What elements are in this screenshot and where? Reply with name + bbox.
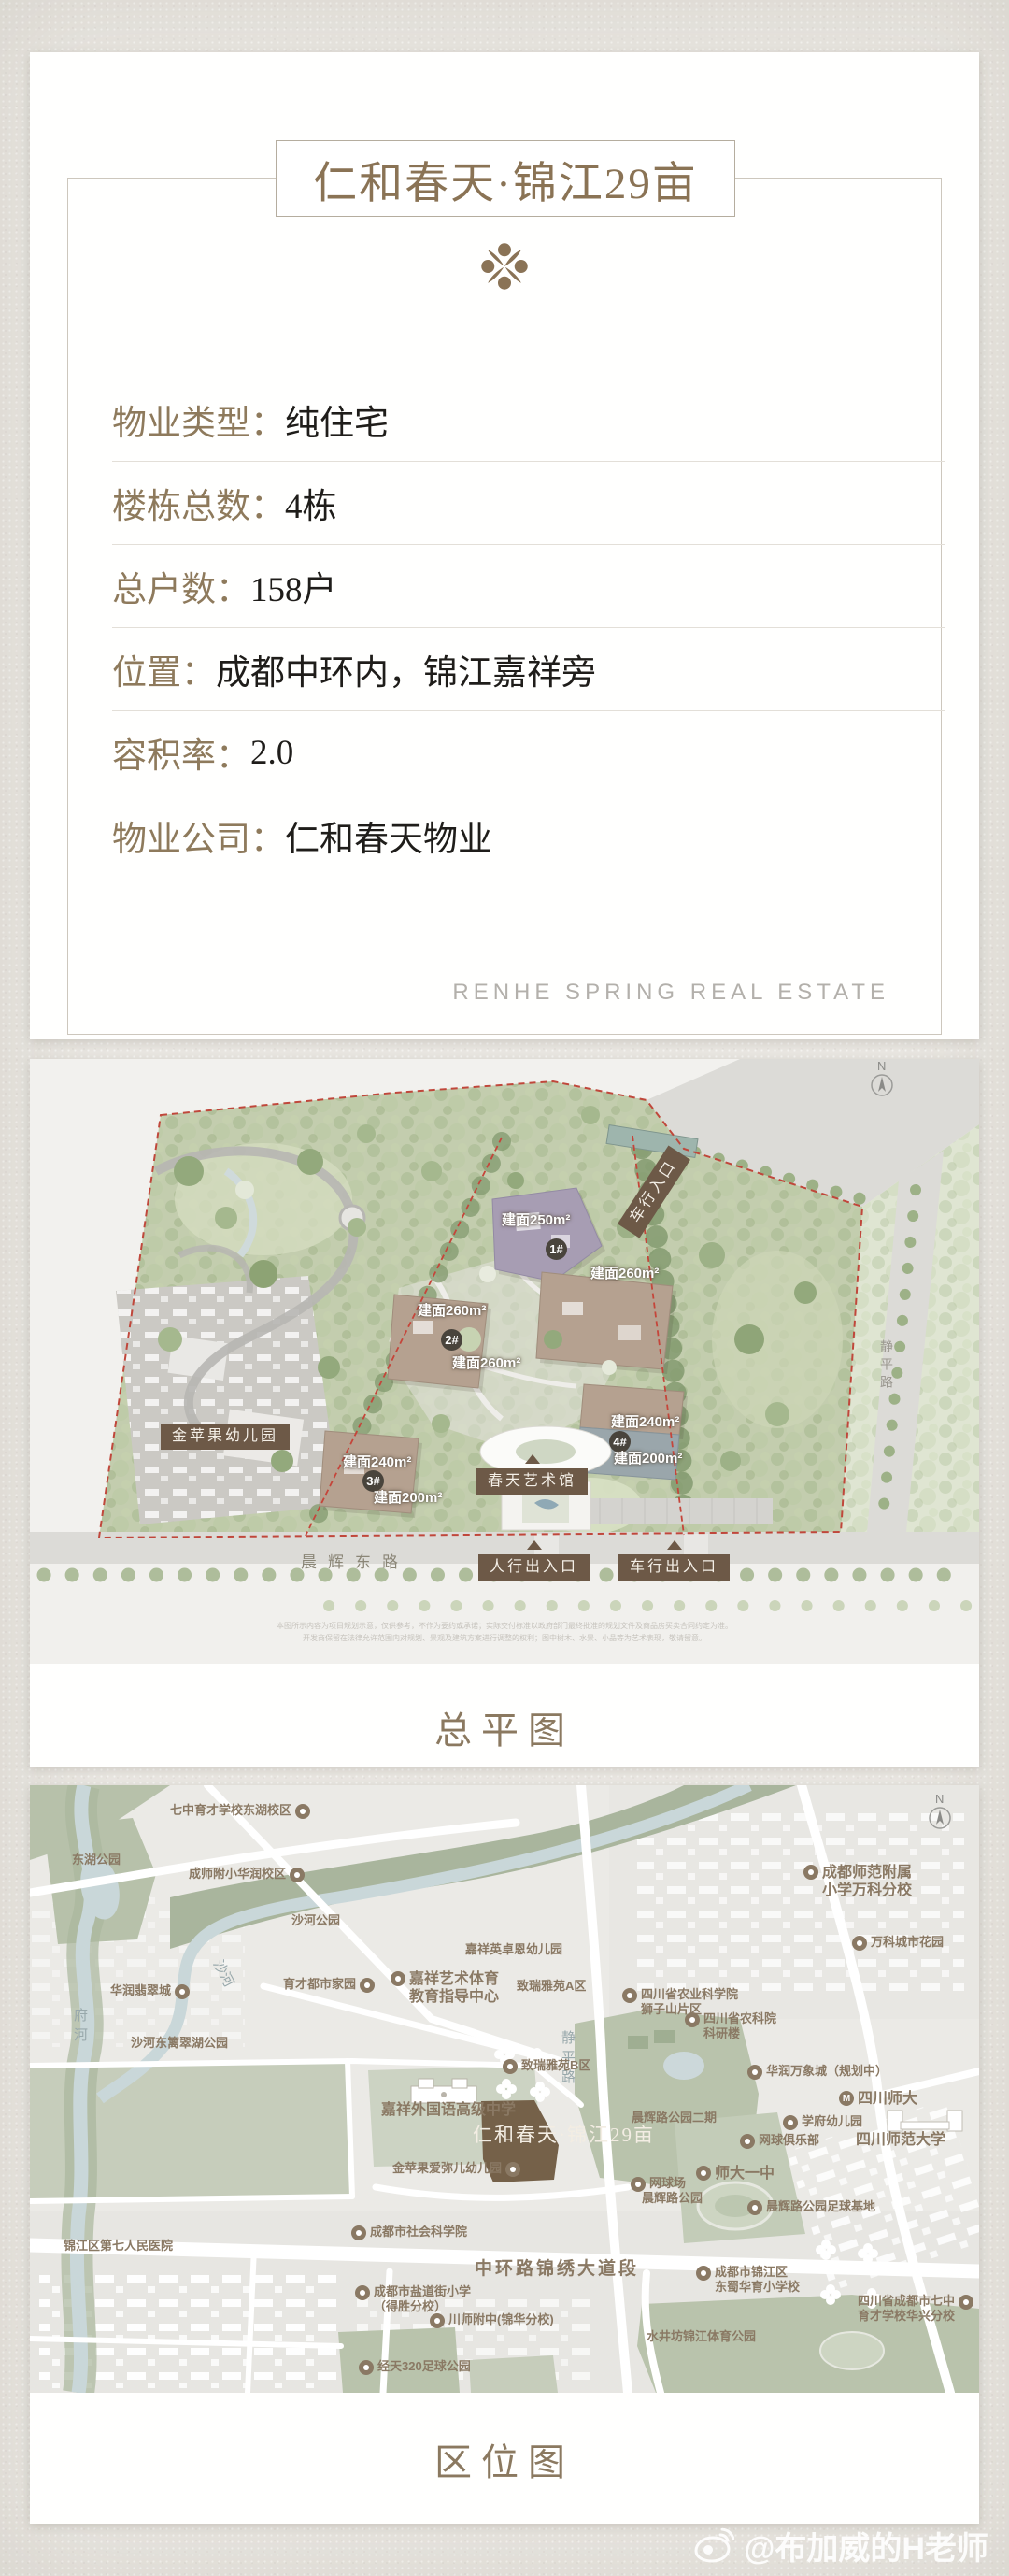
building-area-label: 建面200m² — [614, 1452, 682, 1467]
poi-school: 成都市锦江区东蜀华育小学校 — [696, 2265, 800, 2295]
property-row: 容积率：2.0 — [112, 711, 945, 794]
poi-icon — [747, 2200, 762, 2215]
poi-residence: 致瑞雅苑A区 — [517, 1979, 586, 1994]
poi-tennis-court: 网球场 — [631, 2176, 686, 2192]
building-3-badge: 3# — [362, 1470, 384, 1492]
info-card: 仁和春天·锦江29亩 物业类型：纯住宅楼栋总数：4栋总户数：158户位置：成都中… — [30, 52, 979, 1039]
poi-school: 成都师范附属小学万科分校 — [803, 1864, 912, 1899]
poi-school-jiaxiang: 嘉祥外国语高级中学 — [381, 2101, 516, 2119]
poi-school: 师大一中 — [696, 2165, 775, 2182]
poi-icon — [685, 2012, 700, 2027]
poi-icon — [631, 2177, 646, 2192]
project-title: 仁和春天·锦江29亩 — [313, 147, 698, 211]
property-row: 楼栋总数：4栋 — [112, 462, 945, 545]
poi-park: 东湖公园 — [72, 1853, 121, 1868]
building-area-label: 建面260m² — [418, 1304, 486, 1319]
road-label-jingping: 静平路 — [875, 1339, 894, 1397]
poi-icon — [852, 1936, 867, 1951]
poi-icon — [622, 1988, 637, 2003]
poi-icon — [295, 1804, 310, 1819]
poi-icon — [355, 2285, 370, 2300]
poi-icon — [175, 1984, 190, 1999]
poi-icon — [430, 2313, 445, 2328]
poi-school: 川师附中(锦华分校) — [430, 2312, 554, 2328]
poi-park: 晨辉路公园 — [642, 2191, 703, 2206]
brand-flower-icon — [478, 240, 531, 293]
brand-en-label: RENHE SPRING REAL ESTATE — [452, 980, 889, 1006]
road-label-zhonghuan: 中环路锦绣大道段 — [475, 2260, 639, 2278]
poi-institute: 四川省农科院科研楼 — [685, 2011, 776, 2041]
building-area-label: 建面260m² — [590, 1267, 659, 1281]
weibo-watermark: @布加威的H老师 — [693, 2523, 988, 2569]
property-row: 总户数：158户 — [112, 545, 945, 628]
site-entrance-vehicle-top: 车行入口 — [618, 1145, 690, 1238]
project-title-box: 仁和春天·锦江29亩 — [276, 140, 735, 217]
poi-sports-park: 水井坊锦江体育公园 — [647, 2329, 756, 2344]
vehicle-entrance-banner: 车行出入口 — [618, 1554, 730, 1581]
building-area-label: 建面200m² — [374, 1491, 442, 1506]
poi-icon — [290, 1868, 305, 1882]
poi-icon: M — [839, 2091, 854, 2106]
poi-icon — [783, 2115, 798, 2130]
poi-icon — [360, 1978, 375, 1993]
poi-school: 七中育才学校东湖校区 — [170, 1803, 310, 1819]
poi-academy: 成都市社会科学院 — [351, 2225, 467, 2240]
site-plan-card: N 车行入口建面250m²1#建面260m²建面260m²2#建面260m²建面… — [30, 1059, 979, 1767]
poi-metro-station: M四川师大 — [839, 2090, 917, 2108]
site-plan-labels: 车行入口建面250m²1#建面260m²建面260m²2#建面260m²建面24… — [30, 1059, 979, 1664]
building-1-badge: 1# — [546, 1238, 567, 1260]
poi-residence: 华润翡翠城 — [110, 1983, 190, 1999]
poster-page: 仁和春天·锦江29亩 物业类型：纯住宅楼栋总数：4栋总户数：158户位置：成都中… — [0, 0, 1009, 2576]
poi-education-center: 嘉祥艺术体育教育指导中心 — [391, 1970, 499, 2006]
poi-school: 四川省成都市七中育才学校华兴分校 — [858, 2294, 973, 2324]
building-2-badge: 2# — [441, 1329, 462, 1351]
poi-icon — [351, 2225, 366, 2240]
property-rows: 物业类型：纯住宅楼栋总数：4栋总户数：158户位置：成都中环内，锦江嘉祥旁容积率… — [112, 379, 945, 877]
site-plan-disclaimer: 本图所示内容为项目规划示意，仅供参考，不作为要约或承诺；实际交付标准以政府部门最… — [86, 1620, 923, 1644]
poi-icon — [803, 1865, 818, 1880]
poi-icon — [747, 2065, 762, 2080]
weibo-icon — [693, 2528, 734, 2564]
poi-icon — [505, 2162, 520, 2177]
poi-park: 沙河公园 — [291, 1913, 340, 1928]
property-row: 物业公司：仁和春天物业 — [112, 794, 945, 877]
location-map-caption: 区位图 — [30, 2432, 979, 2486]
poi-school: 成都市盐道街小学（得胜分校） — [355, 2284, 471, 2314]
building-area-label: 建面260m² — [452, 1356, 520, 1371]
site-plan-map: N 车行入口建面250m²1#建面260m²建面260m²2#建面260m²建面… — [30, 1059, 979, 1664]
poi-residence: 万科城市花园 — [852, 1935, 944, 1951]
poi-residence: 育才都市家园 — [283, 1977, 375, 1993]
poi-park: 晨辉路公园二期 — [632, 2111, 717, 2125]
poi-kindergarten: 嘉祥英卓恩幼儿园 — [465, 1942, 562, 1957]
site-plan-caption: 总平图 — [30, 1700, 979, 1754]
building-area-label: 建面250m² — [502, 1213, 570, 1228]
poi-tennis-club: 网球俱乐部 — [740, 2133, 819, 2149]
poi-hospital: 锦江区第七人民医院 — [64, 2239, 173, 2254]
poi-icon — [391, 1971, 405, 1986]
poi-icon — [959, 2295, 973, 2310]
poi-park: 沙河东篱翠湖公园 — [131, 2036, 228, 2051]
river-label-shahe: 沙河 — [209, 1957, 238, 1990]
location-map-labels: 七中育才学校东湖校区东湖公园成师附小华润校区沙河公园沙河府河华润翡翠城育才都市家… — [30, 1785, 979, 2393]
property-row: 位置：成都中环内，锦江嘉祥旁 — [112, 628, 945, 711]
poi-mall-planned: 华润万象城（规划中） — [747, 2064, 888, 2080]
poi-kindergarten: 学府幼儿园 — [783, 2114, 862, 2130]
poi-university: 四川师范大学 — [856, 2131, 945, 2149]
poi-football-park: 经天320足球公园 — [359, 2359, 471, 2375]
building-4-badge: 4# — [609, 1431, 631, 1453]
building-area-label: 建面240m² — [611, 1415, 679, 1430]
poi-kindergarten: 金苹果爱弥儿幼儿园 — [392, 2161, 520, 2177]
poi-football-base: 晨辉路公园足球基地 — [747, 2199, 875, 2215]
poi-icon — [359, 2360, 374, 2375]
river-label-fuhe: 府河 — [71, 2008, 89, 2047]
poi-school: 成师附小华润校区 — [189, 1867, 305, 1882]
poi-icon — [696, 2266, 711, 2281]
poi-icon — [740, 2134, 755, 2149]
pedestrian-entrance-banner: 人行出入口 — [478, 1554, 590, 1581]
project-site-label: 仁和春天·锦江29亩 — [473, 2124, 655, 2146]
kindergarten-banner: 金苹果幼儿园 — [161, 1424, 290, 1450]
building-area-label: 建面240m² — [343, 1455, 411, 1470]
watermark-handle: @布加威的H老师 — [744, 2523, 988, 2569]
location-map: N 七中育才学校东湖校区东湖公园成师附小华润校区沙河公园沙河府河华润翡翠城育才都… — [30, 1785, 979, 2393]
road-label-chenhui-east: 晨辉东路 — [301, 1549, 409, 1572]
poi-icon — [503, 2059, 518, 2074]
property-row: 物业类型：纯住宅 — [112, 379, 945, 462]
art-gallery-banner: 春天艺术馆 — [476, 1468, 588, 1495]
location-map-card: N 七中育才学校东湖校区东湖公园成师附小华润校区沙河公园沙河府河华润翡翠城育才都… — [30, 1785, 979, 2524]
poi-icon — [696, 2166, 711, 2181]
poi-residence: 致瑞雅苑B区 — [503, 2058, 590, 2074]
